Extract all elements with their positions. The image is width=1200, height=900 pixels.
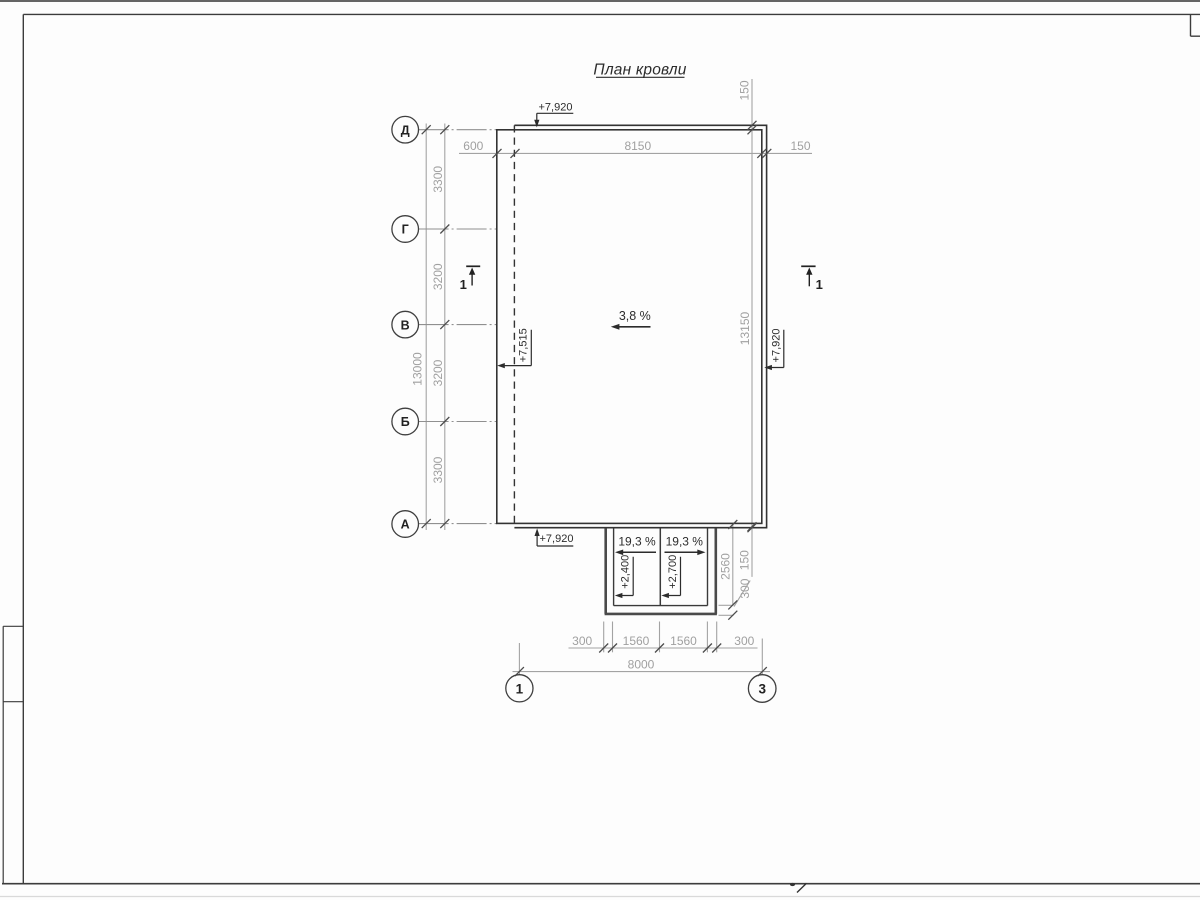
svg-text:150: 150	[738, 80, 752, 100]
svg-text:150: 150	[738, 550, 752, 570]
svg-text:3200: 3200	[431, 263, 445, 290]
svg-text:3,8 %: 3,8 %	[619, 309, 651, 323]
svg-text:150: 150	[790, 139, 810, 153]
svg-text:19,3 %: 19,3 %	[618, 534, 656, 548]
svg-text:3300: 3300	[431, 166, 445, 193]
svg-text:+2,700: +2,700	[667, 555, 679, 589]
svg-text:13150: 13150	[738, 311, 752, 345]
svg-text:2560: 2560	[719, 553, 733, 580]
svg-text:8000: 8000	[628, 658, 655, 672]
svg-text:А: А	[401, 518, 410, 532]
svg-text:19,3 %: 19,3 %	[666, 534, 704, 548]
svg-text:+2,400: +2,400	[620, 555, 632, 589]
svg-text:300: 300	[734, 634, 754, 648]
svg-text:600: 600	[463, 139, 483, 153]
svg-text:Г: Г	[402, 223, 409, 237]
svg-text:+7,920: +7,920	[540, 533, 574, 545]
svg-text:В: В	[401, 318, 410, 332]
svg-text:1560: 1560	[670, 634, 697, 648]
svg-text:+7,920: +7,920	[539, 102, 573, 114]
svg-text:3200: 3200	[431, 359, 445, 386]
svg-text:Б: Б	[401, 415, 410, 429]
svg-text:1: 1	[816, 277, 823, 292]
svg-text:+7,920: +7,920	[771, 329, 783, 363]
svg-text:8150: 8150	[624, 139, 651, 153]
svg-text:1: 1	[460, 277, 467, 292]
svg-text:3300: 3300	[431, 456, 445, 483]
svg-text:300: 300	[738, 578, 752, 598]
svg-text:1: 1	[516, 681, 524, 696]
svg-text:13000: 13000	[411, 352, 425, 386]
svg-text:Д: Д	[401, 123, 410, 137]
svg-text:3: 3	[758, 682, 766, 697]
svg-text:300: 300	[572, 634, 592, 648]
svg-text:+7,515: +7,515	[518, 328, 530, 362]
svg-text:План кровли: План кровли	[593, 62, 686, 79]
svg-text:1560: 1560	[623, 634, 650, 648]
